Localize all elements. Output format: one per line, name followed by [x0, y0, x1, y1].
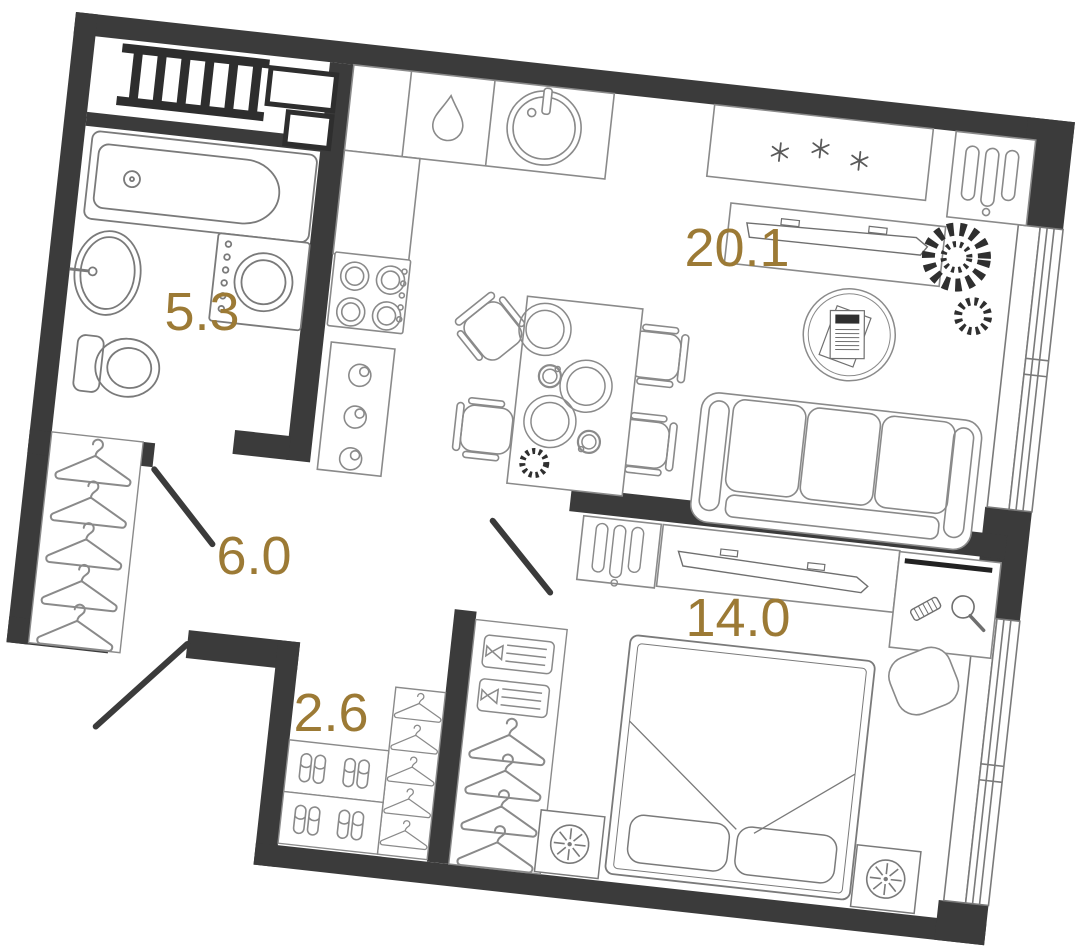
plant-icon	[942, 243, 971, 272]
room-area-label-closet: 2.6	[293, 686, 368, 740]
wash-basin-icon	[65, 227, 145, 318]
toilet-icon	[72, 333, 162, 400]
chair-icon	[452, 396, 515, 462]
corner-cabinet	[947, 131, 1036, 225]
nightstand-lamp-icon	[851, 845, 921, 914]
bathroom-door-leaf-icon	[147, 469, 220, 544]
room-area-label-hallway: 6.0	[216, 529, 291, 583]
rotated-plan	[0, 12, 1075, 945]
hob-icon	[327, 252, 411, 334]
living-window-icon	[987, 225, 1063, 512]
wall-bath-kitchen-foot	[232, 430, 290, 460]
rug-magazines-icon	[798, 284, 900, 386]
room-area-label-bathroom: 5.3	[164, 285, 239, 339]
towel-radiator-icon	[116, 43, 270, 121]
dining-set	[433, 283, 692, 502]
room-area-label-bedroom: 14.0	[685, 591, 790, 645]
bed-icon	[605, 635, 876, 901]
kitchen-counter	[333, 65, 614, 283]
oven-knobs-icon	[317, 342, 395, 476]
dining-table-icon	[507, 296, 643, 496]
bedroom-door-leaf-icon	[486, 521, 558, 593]
vanity-table	[889, 552, 1001, 659]
bathroom	[56, 40, 337, 416]
room-area-label-living: 20.1	[684, 221, 789, 275]
floor-plan-canvas: 5.3 6.0 2.6 20.1 14.0	[0, 0, 1082, 947]
plant-icon	[956, 300, 989, 333]
nightstand-lamp-icon	[534, 810, 604, 879]
bedroom-shoe-cabinet	[576, 516, 661, 591]
floor-plan-drawing	[0, 0, 1082, 947]
wall-right-bottom	[934, 900, 988, 945]
bedroom-window-icon	[944, 616, 1020, 905]
